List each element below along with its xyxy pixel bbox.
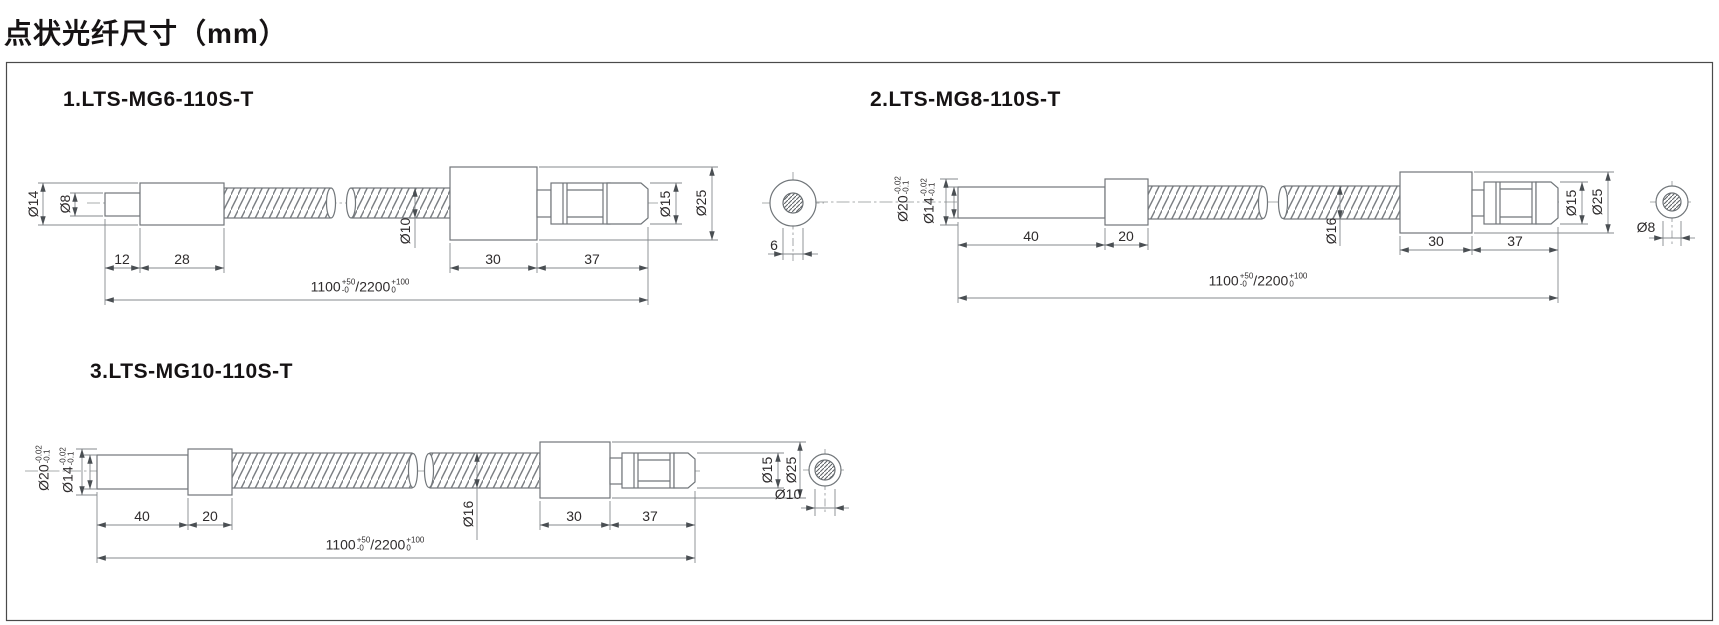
drawing3-title: 3.LTS-MG10-110S-T — [90, 360, 293, 384]
drawing2-title: 2.LTS-MG8-110S-T — [870, 88, 1061, 112]
d1-overall-tol2-dn: 0 — [391, 287, 409, 295]
d1-body — [140, 183, 224, 225]
d3-collar-len-label: 20 — [202, 509, 218, 523]
d2-head-tol-dn: -0.1 — [903, 176, 911, 194]
d2-overall-length-label: 1100+50-0/2200+1000 — [1209, 273, 1308, 290]
d3-core-dia-label: Ø10 — [775, 487, 801, 501]
d2-block — [1400, 172, 1472, 233]
d2-neck — [1472, 190, 1484, 216]
d1-block-dia-label: Ø25 — [694, 190, 708, 216]
d3-block-len-label: 30 — [566, 509, 582, 523]
d2-overall-tol1-dn: -0 — [1240, 281, 1254, 289]
page: .ol{fill:#fff;stroke:#71767a;stroke-widt… — [0, 0, 1719, 625]
d2-connector — [1484, 182, 1536, 224]
d1-tip-dia-label: Ø8 — [58, 195, 72, 214]
d2-tip-dia-value: Ø14 — [922, 197, 936, 223]
d2-fiber-core — [1663, 193, 1681, 211]
d3-tip-dia-label: Ø14-0.02-0.1 — [60, 447, 77, 493]
d1-overall-tol1-dn: -0 — [342, 287, 356, 295]
d2-connector-dia-label: Ø15 — [1564, 190, 1578, 216]
d3-tip-dia-value: Ø14 — [61, 466, 75, 492]
d3-tip-tol-dn: -0.1 — [68, 447, 76, 465]
d3-tip — [97, 455, 188, 489]
d2-tip-len-label: 40 — [1023, 229, 1039, 243]
d3-fiber-core — [815, 460, 835, 480]
d3-head-dia-value: Ø20 — [37, 464, 51, 490]
drawing3-end-view — [801, 449, 849, 516]
d2-block-dia-label: Ø25 — [1590, 189, 1604, 215]
d2-endcap — [1536, 182, 1558, 224]
d1-connector-len-label: 37 — [584, 252, 600, 266]
d2-connector-len-label: 37 — [1507, 234, 1523, 248]
d3-overall-len2: 2200 — [374, 538, 405, 552]
d1-overall-len2: 2200 — [359, 280, 390, 294]
d3-tip-len-label: 40 — [134, 509, 150, 523]
d2-head-dia-label: Ø20-0.02-0.1 — [895, 176, 912, 222]
drawing-canvas: .ol{fill:#fff;stroke:#71767a;stroke-widt… — [0, 0, 1719, 625]
d3-conduit-dia-label: Ø16 — [461, 501, 475, 527]
d1-connector-dia-label: Ø15 — [658, 191, 672, 217]
d2-block-len-label: 30 — [1428, 234, 1444, 248]
d1-fiber-core — [783, 193, 803, 213]
d1-overall-length-label: 1100+50-0/2200+1000 — [311, 279, 410, 296]
content-border — [7, 63, 1713, 621]
d1-endcap — [607, 183, 648, 224]
d2-tip-tol-dn: -0.1 — [929, 178, 937, 196]
d2-tip-dia-label: Ø14-0.02-0.1 — [921, 178, 938, 224]
d2-collar — [1105, 179, 1148, 225]
d3-neck — [610, 458, 622, 484]
d2-conduit-dia-label: Ø16 — [1324, 218, 1338, 244]
d1-block — [450, 167, 537, 240]
d3-head-dia-label: Ø20-0.02-0.1 — [36, 445, 53, 491]
d1-neck — [537, 190, 551, 217]
d1-conduit-dia-label: Ø10 — [398, 218, 412, 244]
d2-tip — [958, 187, 1105, 218]
d3-overall-tol1-dn: -0 — [357, 545, 371, 553]
d1-core-dia-label: 6 — [770, 238, 778, 252]
d3-block-dia-label: Ø25 — [784, 457, 798, 483]
d2-overall-tol2-dn: 0 — [1289, 281, 1307, 289]
d3-connector-dia-label: Ø15 — [760, 457, 774, 483]
d2-core-dia-label: Ø8 — [1637, 220, 1656, 234]
d3-collar — [188, 449, 232, 495]
d3-head-tol-dn: -0.1 — [44, 445, 52, 463]
d2-head-dia-value: Ø20 — [896, 195, 910, 221]
d1-overall-len1: 1100 — [311, 280, 341, 294]
d3-overall-tol2-dn: 0 — [406, 545, 424, 553]
d3-endcap — [674, 453, 695, 488]
drawing2-end-view — [1649, 181, 1695, 246]
d1-tip-len-label: 12 — [114, 252, 130, 266]
d1-body-len-label: 28 — [174, 252, 190, 266]
d2-overall-len1: 1100 — [1209, 274, 1239, 288]
d3-overall-len1: 1100 — [326, 538, 356, 552]
d1-tip — [105, 193, 140, 216]
d1-connector — [551, 183, 610, 224]
d1-body-dia-label: Ø14 — [26, 191, 40, 217]
drawing1-title: 1.LTS-MG6-110S-T — [63, 88, 254, 112]
d3-overall-length-label: 1100+50-0/2200+1000 — [326, 537, 425, 554]
d3-connector — [622, 453, 674, 488]
d3-connector-len-label: 37 — [642, 509, 658, 523]
d3-block — [540, 442, 610, 498]
page-title: 点状光纤尺寸（mm） — [4, 12, 288, 52]
d1-block-len-label: 30 — [485, 252, 501, 266]
d2-overall-len2: 2200 — [1257, 274, 1288, 288]
d2-collar-len-label: 20 — [1118, 229, 1134, 243]
